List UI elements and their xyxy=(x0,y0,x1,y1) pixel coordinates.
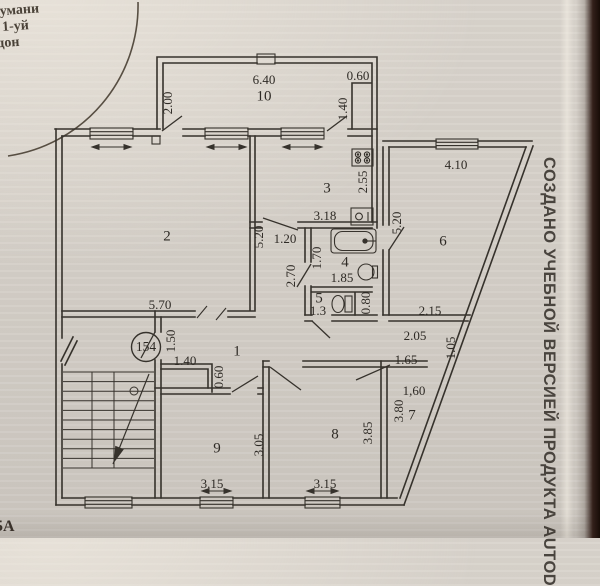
room-number-label: 8 xyxy=(331,426,339,442)
dimension-label: 2.70 xyxy=(283,265,298,288)
dimension-label: 3.18 xyxy=(314,208,337,223)
dimension-label: 1.50 xyxy=(163,330,178,353)
room-number-label: 4 xyxy=(341,254,349,270)
room-number-label: 6 xyxy=(439,233,447,249)
washbasin-icon xyxy=(358,264,378,280)
dimension-label: 3.85 xyxy=(360,422,375,445)
room-number-label: 7 xyxy=(408,407,416,423)
dimension-label: 1.3 xyxy=(310,303,326,318)
dimension-label: 3.05 xyxy=(251,434,266,457)
room-number-label: 3 xyxy=(323,180,331,196)
room-number-label: 1 xyxy=(233,343,241,359)
windows-layer xyxy=(85,54,478,508)
doors-layer xyxy=(141,116,404,392)
photographed-floor-plan: { "photo": { "paper_color": "#d6d1c9", "… xyxy=(0,0,600,538)
toilet-icon xyxy=(332,296,352,313)
dimension-label: 2.55 xyxy=(355,171,370,194)
room-number-label: 10 xyxy=(257,88,272,104)
floor-plan-drawing: 123456789106.400.602.001.404.105.202.555… xyxy=(0,0,600,538)
dimension-label: 0.60 xyxy=(347,68,370,83)
dimension-label: 5.20 xyxy=(251,226,266,249)
dimension-label: 1.65 xyxy=(395,352,418,367)
round-stamp: тумани 1-уй дон xyxy=(0,0,121,51)
dimension-label: 1.40 xyxy=(335,98,350,121)
stove-icon xyxy=(352,149,373,166)
dimension-label: 2.05 xyxy=(404,328,427,343)
apartment-number-label: 154 xyxy=(136,339,157,354)
dimension-label: 1.20 xyxy=(274,231,297,246)
dimension-label: 2.00 xyxy=(160,92,175,115)
dimension-label: 0.80 xyxy=(358,292,373,315)
dimension-label: 1.85 xyxy=(331,270,354,285)
staircase xyxy=(63,372,154,468)
room-number-label: 2 xyxy=(163,228,171,244)
room-number-label: 9 xyxy=(213,440,221,456)
bathtub-icon xyxy=(331,229,376,253)
dimension-label: 0.60 xyxy=(211,366,226,389)
bottom-shade xyxy=(0,512,600,538)
dimension-label: 2.15 xyxy=(419,303,442,318)
dimension-label: 1.05 xyxy=(443,337,458,360)
dimension-label: 1.40 xyxy=(174,353,197,368)
paper-crease xyxy=(560,0,574,538)
dimension-label: 3.80 xyxy=(391,400,406,423)
dimension-label: 3.15 xyxy=(314,476,337,491)
stairs-direction-arrow-icon xyxy=(113,374,149,464)
dimension-label: 1.70 xyxy=(309,247,324,270)
dimension-label: 6.40 xyxy=(253,72,276,87)
photo-edge xyxy=(576,0,600,538)
dimension-label: 1,60 xyxy=(403,383,426,398)
dimension-label: 5.70 xyxy=(149,297,172,312)
dimension-label: 4.10 xyxy=(445,157,468,172)
dimension-label: 3.15 xyxy=(201,476,224,491)
dimension-label: 5.20 xyxy=(389,212,404,235)
